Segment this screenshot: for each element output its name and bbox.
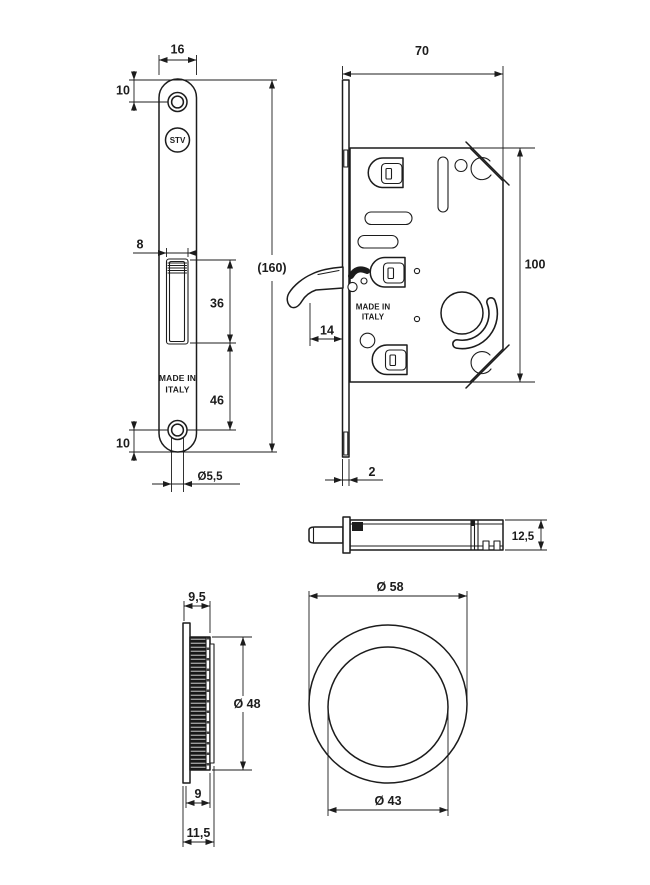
dim-label-case-thickness: 12,5	[512, 531, 535, 543]
lock-technical-drawing: STV MADE IN ITALY	[0, 0, 650, 885]
dim-label-latch-width: 8	[137, 238, 144, 252]
dim-label-hook-projection: 14	[320, 324, 334, 338]
dim-label-cup-dia: Ø 48	[233, 697, 260, 711]
dim-label-outer-dia: Ø 58	[376, 580, 403, 594]
fixing-tab-bottom	[372, 345, 407, 375]
dim-label-faceplate-thickness: 2	[369, 465, 376, 479]
technical-drawing-page: STV MADE IN ITALY	[0, 0, 650, 885]
dim-label-overall-length: (160)	[257, 261, 286, 275]
latch-block	[352, 522, 363, 531]
dim-label-rim-depth: 9,5	[188, 590, 205, 604]
dim-label-cup-depth: 9	[195, 787, 202, 801]
made-in-line2: ITALY	[362, 313, 385, 322]
dim-label-screw-hole-dia: Ø5,5	[198, 471, 224, 483]
edge-tick	[471, 520, 475, 526]
edge-notch-2	[494, 541, 500, 550]
dim-label-case-height: 100	[525, 258, 546, 272]
hook-pin	[361, 278, 367, 284]
pull-rim-side	[183, 623, 190, 783]
edge-notch-1	[483, 541, 489, 550]
dim-label-bottom-screw-offset: 10	[116, 437, 130, 451]
dim-label-inner-dia: Ø 43	[374, 794, 401, 808]
pull-cup-back	[210, 644, 214, 763]
dim-label-overall-depth: 11,5	[187, 826, 211, 840]
pull-knurl	[190, 637, 206, 770]
made-in-line2: ITALY	[165, 384, 189, 394]
hook-pivot	[348, 282, 357, 291]
pull-inner-circle	[328, 647, 448, 767]
dim-label-case-depth: 70	[415, 44, 429, 58]
made-in-line1: MADE IN	[356, 303, 391, 312]
dim-label-plate-width: 16	[171, 43, 185, 57]
dim-label-latch-length: 36	[210, 297, 224, 311]
fixing-tab-middle	[370, 258, 405, 288]
faceplate-side	[343, 517, 350, 553]
dim-label-latch-to-screw: 46	[210, 394, 224, 408]
latch-slot	[167, 259, 189, 344]
latch-pin-side	[309, 527, 343, 543]
dim-label-top-screw-offset: 10	[116, 84, 130, 98]
fixing-tab-top	[368, 158, 403, 188]
brand-logo-text: STV	[170, 136, 186, 145]
made-in-line1: MADE IN	[159, 373, 196, 383]
